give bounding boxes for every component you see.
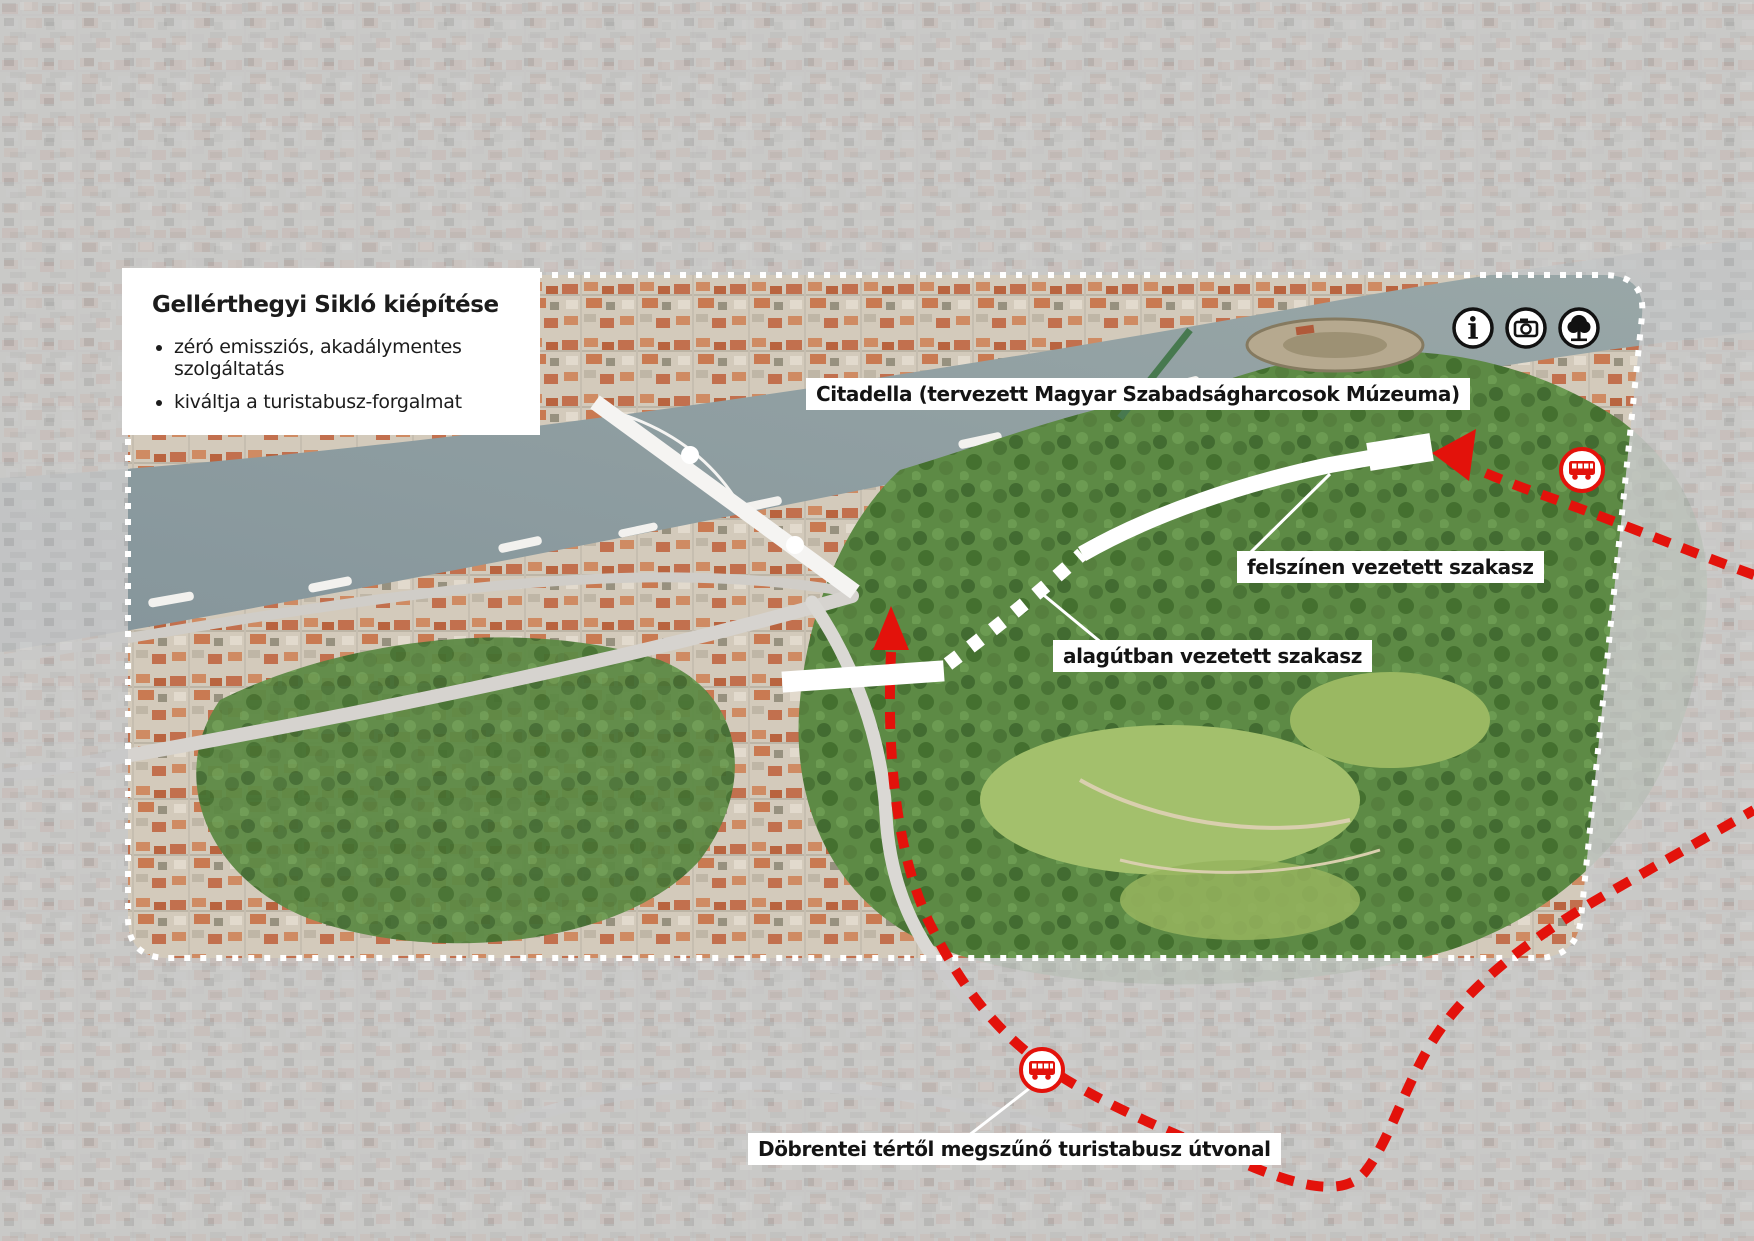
- legend-icons: i: [1454, 309, 1598, 347]
- info-box-title: Gellérthegyi Sikló kiépítése: [152, 292, 510, 318]
- annotation-overlay: i: [0, 0, 1754, 1241]
- info-box: Gellérthegyi Sikló kiépítése zéró emissz…: [122, 268, 540, 435]
- info-icon: i: [1454, 309, 1492, 347]
- tree-icon: [1560, 309, 1598, 347]
- funicular-lower-station: [781, 660, 944, 692]
- info-box-bullet-list: zéró emissziós, akadálymentes szolgáltat…: [152, 336, 510, 413]
- infographic-canvas: i Gellérthegyi Sikló kiépítése zéró emis…: [0, 0, 1754, 1241]
- citadella-label: Citadella (tervezett Magyar Szabadsághar…: [806, 378, 1470, 410]
- info-box-bullet: zéró emissziós, akadálymentes szolgáltat…: [174, 336, 510, 380]
- bus-route-lower-dashed-line: [890, 652, 1754, 1187]
- surface-section-label: felszínen vezetett szakasz: [1237, 551, 1544, 583]
- bus-route-arrow-up: [873, 606, 909, 650]
- svg-text:i: i: [1467, 312, 1478, 347]
- bus-stop-marker-upper: [1561, 449, 1603, 491]
- bus-route-label: Döbrentei tértől megszűnő turistabusz út…: [748, 1133, 1281, 1165]
- bus-route-arrow-to-citadella: [1432, 429, 1476, 481]
- tunnel-section-label: alagútban vezetett szakasz: [1053, 640, 1372, 672]
- bus-stop-marker-lower: [1021, 1049, 1063, 1091]
- info-box-bullet: kiváltja a turistabusz-forgalmat: [174, 391, 510, 413]
- leader-line-bus-route-label: [968, 1084, 1035, 1136]
- leader-line-tunnel-label: [1040, 592, 1103, 644]
- camera-icon: [1507, 309, 1545, 347]
- funicular-upper-station: [1366, 433, 1434, 471]
- funicular-surface-route: [1082, 452, 1404, 554]
